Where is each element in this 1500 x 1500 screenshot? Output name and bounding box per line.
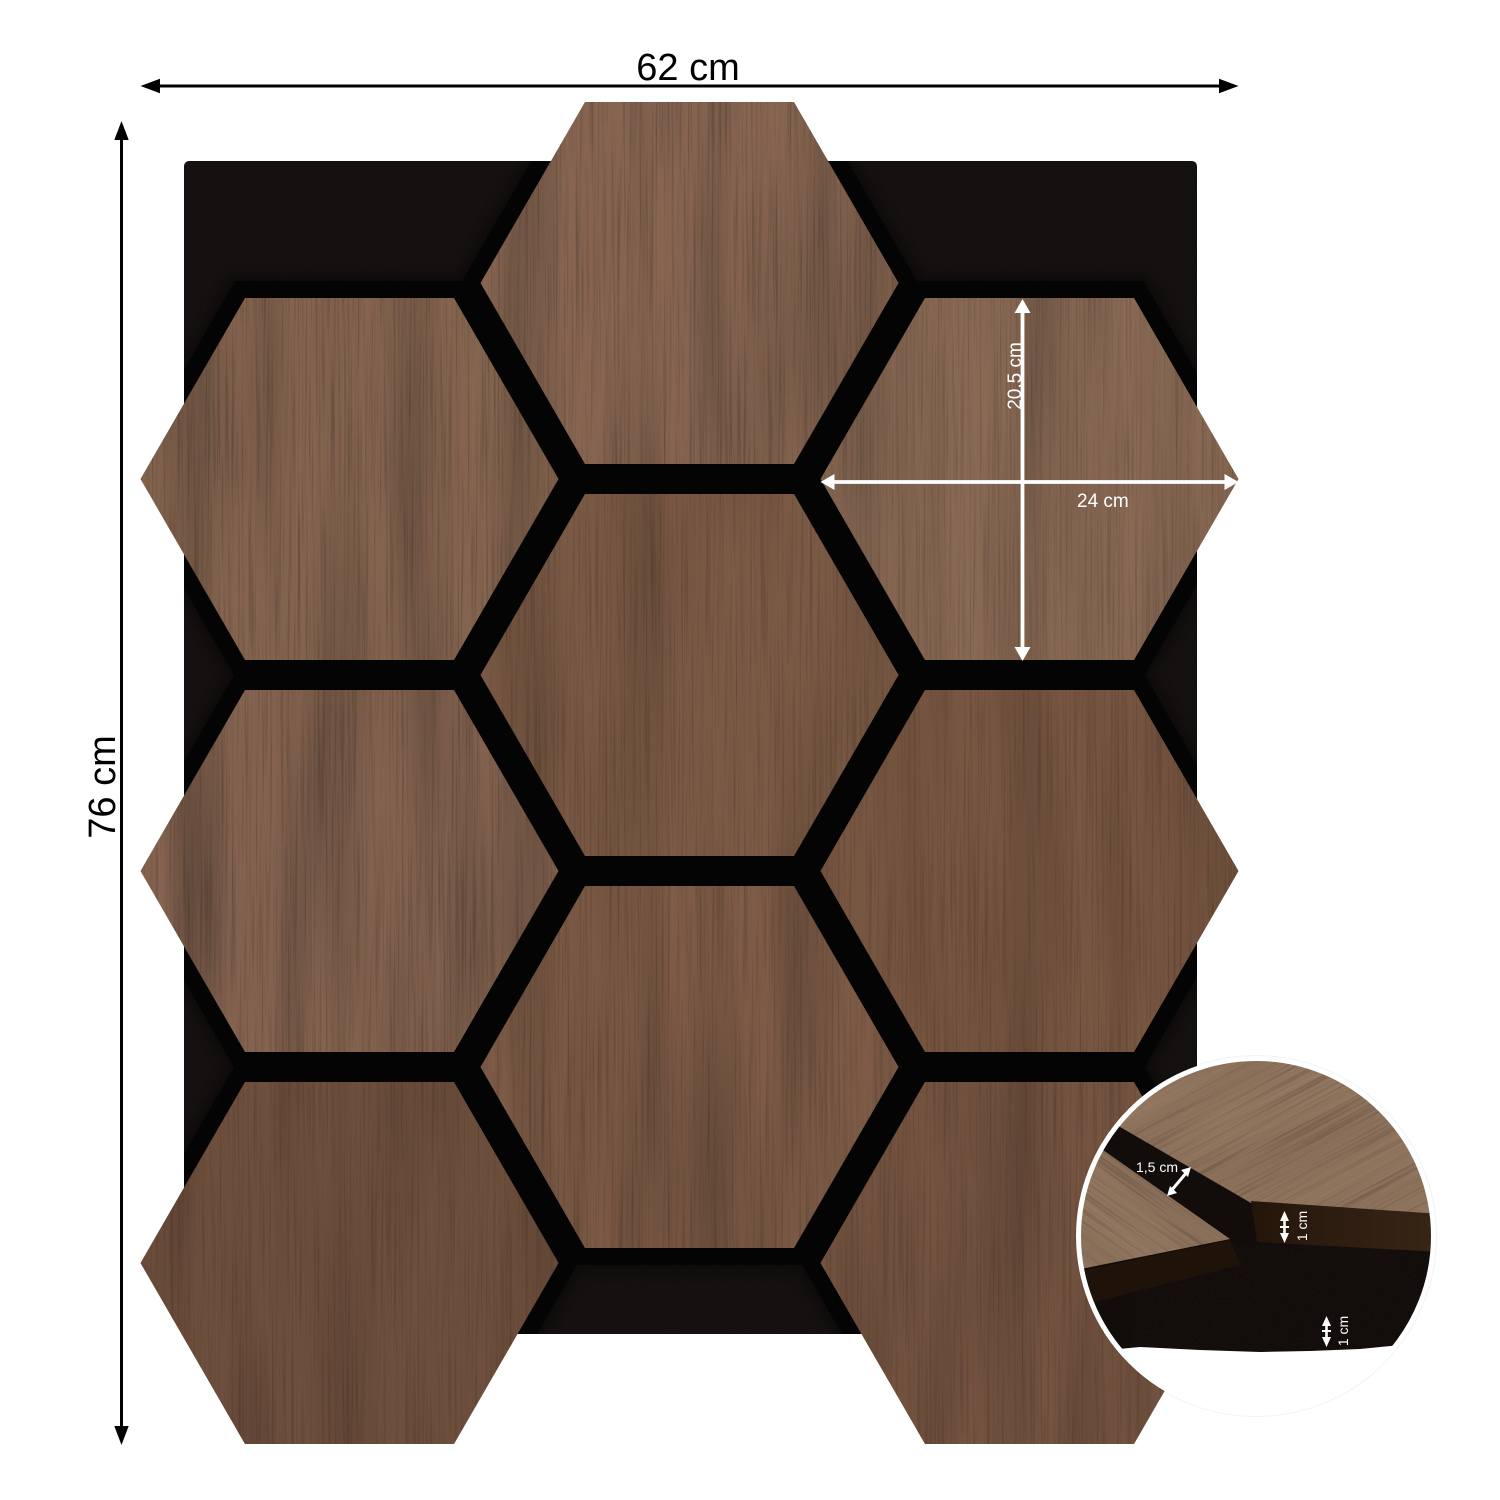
svg-text:24 cm: 24 cm: [1077, 491, 1129, 512]
svg-text:1,5 cm: 1,5 cm: [1136, 1159, 1178, 1175]
svg-text:76 cm: 76 cm: [82, 735, 124, 838]
svg-text:1 cm: 1 cm: [1294, 1211, 1310, 1241]
svg-text:1 cm: 1 cm: [1335, 1316, 1351, 1346]
svg-text:62 cm: 62 cm: [636, 47, 739, 89]
svg-text:20,5 cm: 20,5 cm: [1005, 342, 1026, 410]
